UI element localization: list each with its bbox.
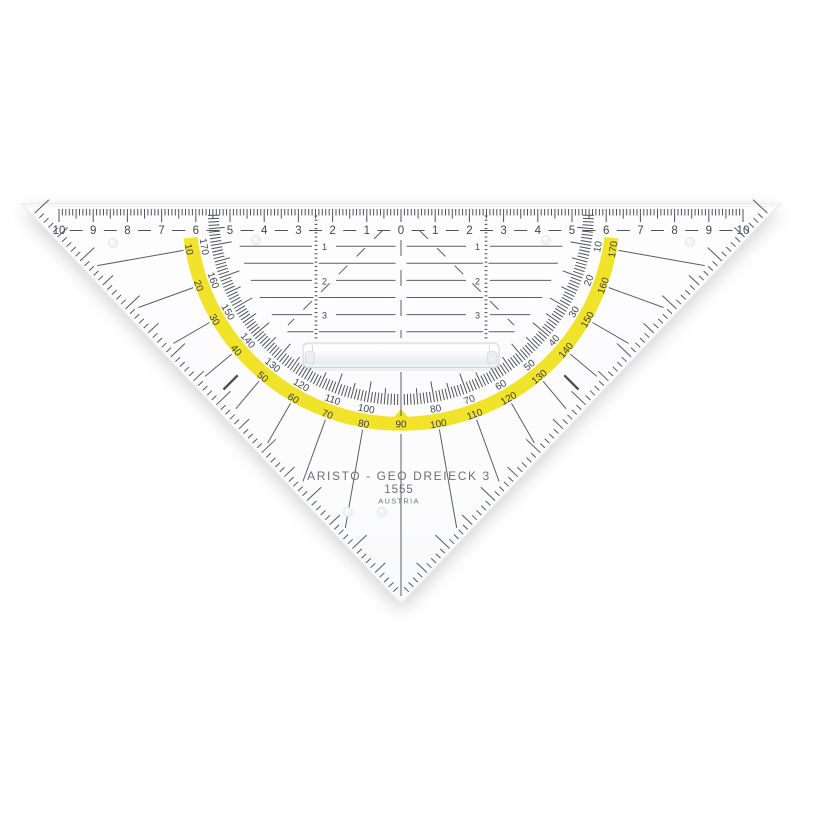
geo-triangle-photo: 1098765432101234567891012312317016015014…: [0, 0, 815, 815]
country-label: AUSTRIA: [378, 497, 420, 506]
svg-text:90: 90: [395, 420, 407, 431]
svg-text:2: 2: [329, 225, 335, 237]
svg-text:9: 9: [90, 225, 96, 237]
svg-text:7: 7: [637, 225, 643, 237]
brand-text: ARISTO - GEO DREIECK 3: [307, 469, 491, 483]
svg-text:6: 6: [193, 225, 199, 237]
svg-text:3: 3: [295, 225, 301, 237]
svg-text:1: 1: [322, 242, 327, 252]
svg-text:2: 2: [322, 276, 327, 286]
svg-text:4: 4: [535, 225, 542, 237]
svg-text:1: 1: [432, 225, 438, 237]
svg-text:7: 7: [158, 225, 164, 237]
handle-stud-right: [488, 352, 497, 364]
svg-text:6: 6: [603, 225, 609, 237]
svg-text:4: 4: [261, 225, 268, 237]
handle: [303, 343, 499, 371]
model-number: 1555: [384, 484, 414, 496]
svg-text:2: 2: [475, 276, 480, 286]
svg-text:5: 5: [569, 225, 575, 237]
svg-text:5: 5: [227, 225, 233, 237]
svg-text:9: 9: [706, 225, 712, 237]
product-photo-stage: 1098765432101234567891012312317016015014…: [0, 0, 815, 815]
svg-text:0: 0: [398, 225, 404, 237]
svg-text:3: 3: [322, 311, 327, 321]
svg-text:1: 1: [475, 242, 480, 252]
svg-text:3: 3: [500, 225, 506, 237]
svg-text:3: 3: [475, 311, 480, 321]
svg-text:2: 2: [466, 225, 472, 237]
svg-text:1: 1: [364, 225, 370, 237]
svg-text:8: 8: [671, 225, 677, 237]
svg-text:8: 8: [124, 225, 130, 237]
handle-stud-left: [306, 352, 315, 364]
